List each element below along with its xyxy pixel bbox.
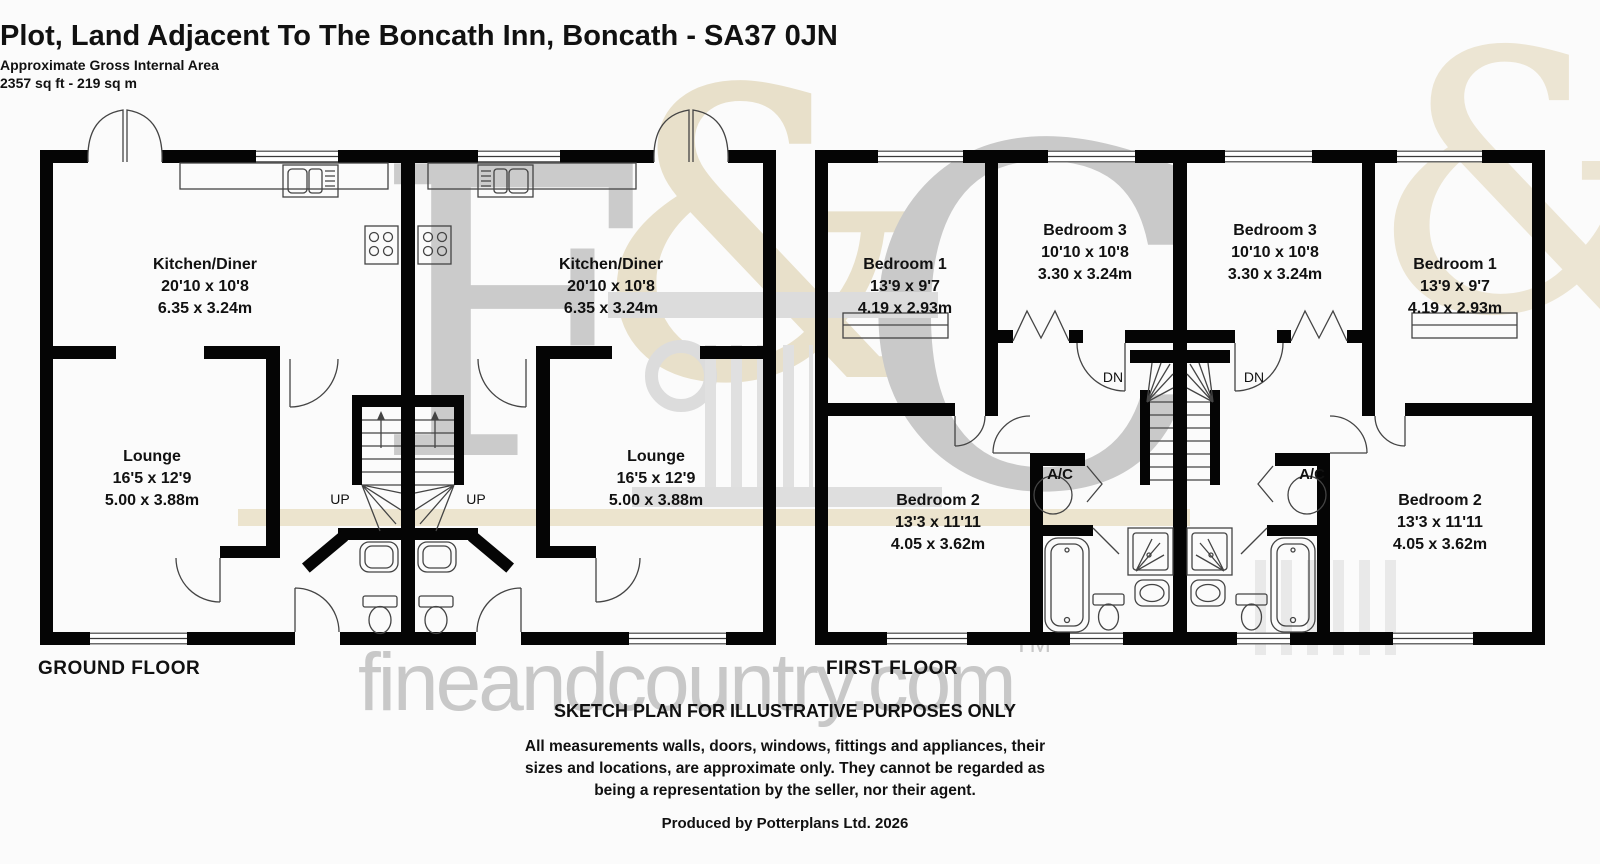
ground-floor-unit-right (408, 150, 776, 645)
airing-cupboard-label-left: A/C (1030, 466, 1090, 483)
room-size-metric: 4.19 x 2.93m (805, 298, 1005, 320)
room-name: Bedroom 1 (1355, 254, 1555, 276)
toilet (1236, 594, 1267, 605)
floorplan-page: F & C & fineandcountry.comTM Plot, Land … (0, 0, 1600, 864)
stairs-down-label-right: DN (1232, 369, 1276, 385)
french-door-leaf (88, 110, 123, 162)
wc-toilet (363, 596, 397, 607)
sketch-plan-notice: SKETCH PLAN FOR ILLUSTRATIVE PURPOSES ON… (0, 701, 1570, 722)
wardrobe-doors-zigzag (1013, 311, 1069, 341)
room-size-imperial: 16'5 x 12'9 (52, 468, 252, 490)
walls (408, 150, 776, 645)
room-label-bedroom2-left: Bedroom 2 13'3 x 11'11 4.05 x 3.62m (838, 490, 1038, 556)
bathroom-door (1093, 528, 1119, 554)
door-arc (477, 588, 521, 632)
page-title: Plot, Land Adjacent To The Boncath Inn, … (0, 20, 1600, 53)
shower (1128, 528, 1173, 575)
room-name: Kitchen/Diner (105, 254, 305, 276)
hob (418, 226, 451, 264)
stair-winders (415, 485, 454, 531)
ground-floor-caption: GROUND FLOOR (38, 658, 200, 680)
door-arc (993, 416, 1030, 453)
toilet (1093, 594, 1124, 605)
sink-drainer (481, 171, 491, 186)
stairs-down-label-left: DN (1091, 369, 1135, 385)
ac-bifold-door (1258, 466, 1273, 502)
shower (1187, 528, 1232, 575)
room-label-bedroom3-right: Bedroom 3 10'10 x 10'8 3.30 x 3.24m (1175, 220, 1375, 286)
sink-drainer (325, 171, 335, 186)
disclaimer-line-1: All measurements walls, doors, windows, … (0, 736, 1570, 758)
door-arc (290, 359, 338, 407)
french-door-leaf (693, 110, 728, 162)
room-label-lounge-left: Lounge 16'5 x 12'9 5.00 x 3.88m (52, 446, 252, 512)
ground-floor-unit-left (40, 150, 408, 645)
stair-arrow-head (377, 411, 385, 420)
room-label-bedroom1-right: Bedroom 1 13'9 x 9'7 4.19 x 2.93m (1355, 254, 1555, 320)
room-size-imperial: 10'10 x 10'8 (985, 242, 1185, 264)
room-name: Lounge (556, 446, 756, 468)
room-size-imperial: 13'9 x 9'7 (1355, 276, 1555, 298)
room-size-metric: 5.00 x 3.88m (52, 490, 252, 512)
room-size-imperial: 13'3 x 11'11 (1340, 512, 1540, 534)
room-label-kitchen-left: Kitchen/Diner 20'10 x 10'8 6.35 x 3.24m (105, 254, 305, 320)
room-size-metric: 3.30 x 3.24m (1175, 264, 1375, 286)
produced-by-credit: Produced by Potterplans Ltd. 2026 (0, 815, 1570, 832)
door-arc (955, 416, 985, 446)
stairs-up-label-left: UP (318, 491, 362, 507)
room-size-metric: 4.05 x 3.62m (1340, 534, 1540, 556)
room-name: Bedroom 3 (1175, 220, 1375, 242)
windows (90, 151, 338, 645)
room-size-imperial: 13'3 x 11'11 (838, 512, 1038, 534)
door-arc (176, 558, 220, 602)
gross-area: 2357 sq ft - 219 sq m (0, 75, 1600, 91)
kitchen-counter (428, 163, 636, 189)
room-size-metric: 3.30 x 3.24m (985, 264, 1185, 286)
stairs-up-label-right: UP (454, 491, 498, 507)
room-size-imperial: 16'5 x 12'9 (556, 468, 756, 490)
stair-winders (1187, 363, 1213, 402)
french-door-leaf (654, 110, 689, 162)
room-label-bedroom3-left: Bedroom 3 10'10 x 10'8 3.30 x 3.24m (985, 220, 1185, 286)
room-size-metric: 6.35 x 3.24m (105, 298, 305, 320)
stair-treads (1187, 402, 1210, 480)
room-name: Bedroom 2 (838, 490, 1038, 512)
page-subtitle: Approximate Gross Internal Area (0, 57, 1600, 73)
hob (365, 226, 398, 264)
door-arc (478, 359, 526, 407)
door-arc (1330, 416, 1367, 453)
windows (478, 151, 726, 645)
stair-winders (1147, 363, 1173, 402)
first-floor-caption: FIRST FLOOR (826, 658, 958, 680)
room-size-imperial: 13'9 x 9'7 (805, 276, 1005, 298)
room-size-metric: 4.19 x 2.93m (1355, 298, 1555, 320)
disclaimer-line-2: sizes and locations, are approximate onl… (0, 758, 1570, 780)
room-label-bedroom1-left: Bedroom 1 13'9 x 9'7 4.19 x 2.93m (805, 254, 1005, 320)
wardrobe-doors-zigzag (1291, 311, 1347, 341)
room-name: Bedroom 3 (985, 220, 1185, 242)
wc-toilet (419, 596, 453, 607)
walls (40, 150, 408, 645)
stair-arrow-head (431, 411, 439, 420)
room-label-kitchen-right: Kitchen/Diner 20'10 x 10'8 6.35 x 3.24m (511, 254, 711, 320)
room-name: Lounge (52, 446, 252, 468)
door-arc (1375, 416, 1405, 446)
room-name: Bedroom 2 (1340, 490, 1540, 512)
room-size-metric: 5.00 x 3.88m (556, 490, 756, 512)
room-size-imperial: 10'10 x 10'8 (1175, 242, 1375, 264)
room-size-imperial: 20'10 x 10'8 (511, 276, 711, 298)
room-size-imperial: 20'10 x 10'8 (105, 276, 305, 298)
room-size-metric: 4.05 x 3.62m (838, 534, 1038, 556)
french-door-leaf (127, 110, 162, 162)
kitchen-counter (180, 163, 388, 189)
room-name: Kitchen/Diner (511, 254, 711, 276)
bathroom-door (1241, 528, 1267, 554)
disclaimer-line-3: being a representation by the seller, no… (0, 780, 1570, 802)
door-arc (295, 588, 339, 632)
room-size-metric: 6.35 x 3.24m (511, 298, 711, 320)
ground-floor-plan (40, 150, 776, 645)
stair-winders (362, 485, 401, 531)
room-label-bedroom2-right: Bedroom 2 13'3 x 11'11 4.05 x 3.62m (1340, 490, 1540, 556)
room-name: Bedroom 1 (805, 254, 1005, 276)
room-label-lounge-right: Lounge 16'5 x 12'9 5.00 x 3.88m (556, 446, 756, 512)
door-arc (596, 558, 640, 602)
stair-treads (1150, 402, 1173, 480)
airing-cupboard-label-right: A/C (1282, 466, 1342, 483)
